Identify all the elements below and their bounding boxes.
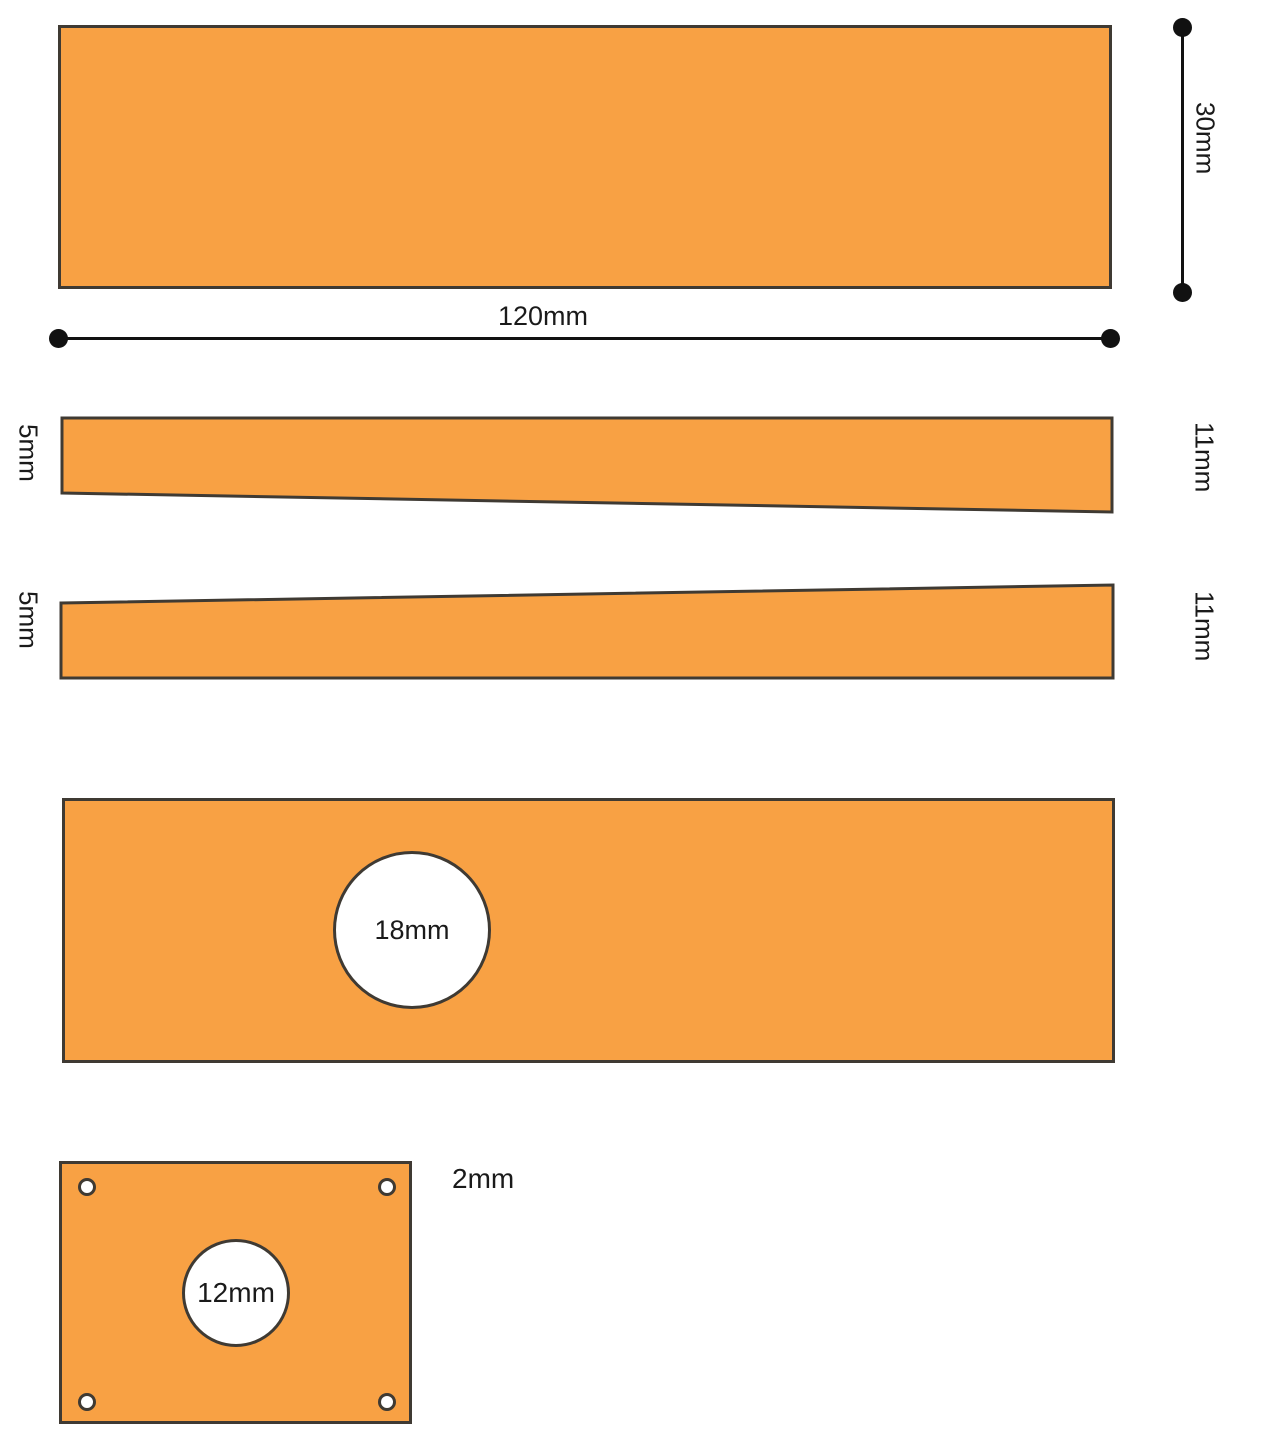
hole-18mm-label: 18mm bbox=[374, 917, 449, 944]
corner-hole-top-left bbox=[78, 1178, 96, 1196]
corner-hole-size-label: 2mm bbox=[452, 1164, 514, 1195]
part-top-plate bbox=[58, 25, 1112, 289]
height-dimension-line bbox=[1181, 27, 1184, 292]
taper-strip-top-shape bbox=[62, 418, 1112, 512]
part-base-plate: 12mm bbox=[59, 1161, 412, 1424]
taper1-right-thickness-label: 11mm bbox=[1190, 422, 1219, 492]
dimension-endpoint-dot bbox=[1101, 329, 1120, 348]
corner-hole-bottom-left bbox=[78, 1393, 96, 1411]
dimension-endpoint-dot bbox=[1173, 18, 1192, 37]
taper-strip-bottom-shape bbox=[61, 585, 1113, 678]
hole-12mm: 12mm bbox=[182, 1239, 290, 1347]
taper-strip-top bbox=[60, 416, 1114, 516]
corner-hole-bottom-right bbox=[378, 1393, 396, 1411]
width-dimension-line bbox=[58, 337, 1111, 340]
hole-18mm: 18mm bbox=[333, 851, 491, 1009]
corner-hole-top-right bbox=[378, 1178, 396, 1196]
dimension-endpoint-dot bbox=[1173, 283, 1192, 302]
technical-drawing-canvas: 30mm 120mm 5mm 11mm 5mm 11mm 18mm 12mm 2… bbox=[0, 0, 1280, 1444]
dimension-endpoint-dot bbox=[49, 329, 68, 348]
height-dimension-label: 30mm bbox=[1191, 102, 1220, 174]
taper2-right-thickness-label: 11mm bbox=[1190, 591, 1219, 661]
hole-12mm-label: 12mm bbox=[197, 1279, 275, 1307]
width-dimension-label: 120mm bbox=[498, 302, 588, 332]
taper-strip-bottom bbox=[59, 583, 1115, 681]
part-plate-with-18mm-hole: 18mm bbox=[62, 798, 1115, 1063]
taper2-left-thickness-label: 5mm bbox=[14, 591, 43, 649]
taper1-left-thickness-label: 5mm bbox=[14, 424, 43, 482]
